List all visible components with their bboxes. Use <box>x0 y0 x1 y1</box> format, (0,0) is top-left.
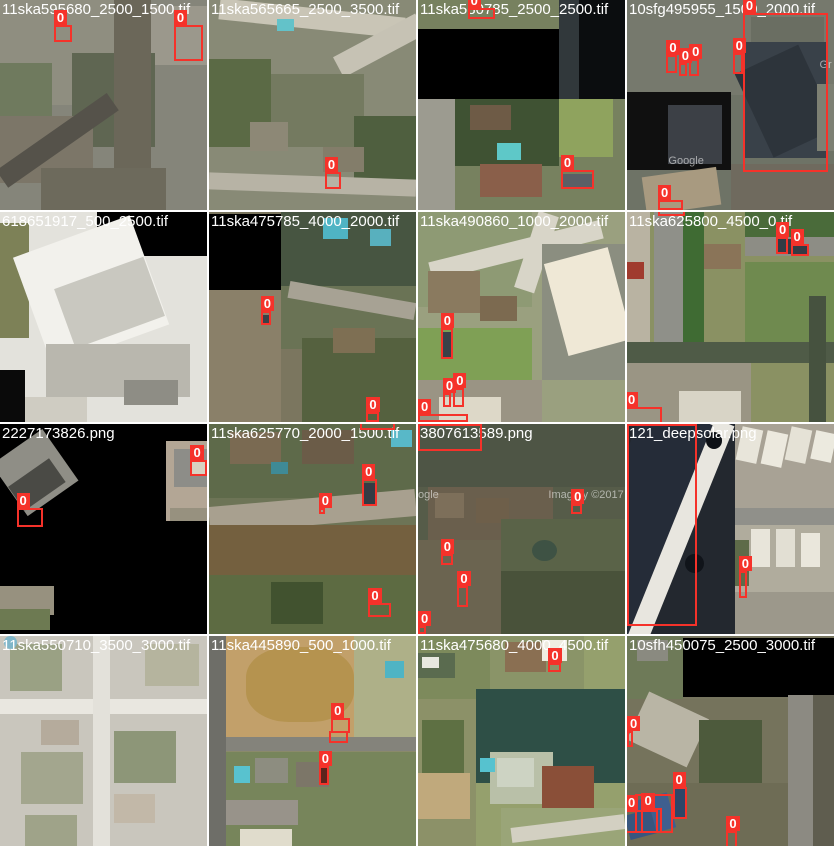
terrain-patch <box>418 773 470 819</box>
terrain-patch <box>501 519 625 572</box>
bounding-box: 0 <box>743 13 828 173</box>
bounding-box: 0 <box>627 407 662 422</box>
bounding-box: 0 <box>418 626 426 634</box>
tile-filename: 11ska580785_2500_2500.tif <box>420 1 608 18</box>
bounding-box: 0 <box>368 603 391 618</box>
bounding-box: 0 <box>457 586 467 607</box>
image-tile: 3807613589.pngogleImagery ©20170000 <box>418 424 625 634</box>
terrain-patch <box>209 525 416 575</box>
bbox-class-label: 0 <box>54 10 67 25</box>
bounding-box: 0 <box>418 414 468 422</box>
bbox-class-label: 0 <box>627 392 638 407</box>
bounding-box: 0 <box>791 244 810 257</box>
image-grid: 11ska595680_2500_1500.tif00 11ska565665_… <box>0 0 834 846</box>
terrain-patch <box>497 143 522 160</box>
tile-filename: 11ska565665_2500_3500.tif <box>211 1 399 18</box>
tile-filename: 11ska475680_4000_4500.tif <box>420 637 608 654</box>
terrain-patch <box>776 529 795 567</box>
bbox-class-label: 0 <box>733 38 746 53</box>
tile-filename: 11ska550710_3500_3000.tif <box>2 637 190 654</box>
bounding-box: 0 <box>443 393 451 408</box>
terrain-patch <box>679 391 741 423</box>
terrain-patch <box>418 29 559 98</box>
terrain-patch <box>627 262 644 279</box>
bounding-box: 0 <box>673 787 687 819</box>
bounding-box: 0 <box>627 810 658 833</box>
bbox-class-label: 0 <box>261 296 274 311</box>
bbox-class-label: 0 <box>791 229 804 244</box>
image-tile: 11ska490860_1000_2000.tif0000 <box>418 212 625 422</box>
bbox-class-label: 0 <box>174 10 187 25</box>
bbox-class-label: 0 <box>319 493 332 508</box>
bounding-box: 0 <box>689 59 699 76</box>
bounding-box: 0 <box>733 53 743 74</box>
terrain-patch <box>41 168 165 210</box>
terrain-patch <box>255 758 288 783</box>
bounding-box: 0 <box>627 731 633 748</box>
bbox-class-label: 0 <box>362 464 375 479</box>
image-tile: 11ska475785_4000_2000.tif00 <box>209 212 416 422</box>
terrain-patch <box>788 695 813 846</box>
image-tile: 618651917_500_2500.tif <box>0 212 207 422</box>
terrain-patch <box>170 508 207 521</box>
terrain-patch <box>21 752 83 805</box>
bbox-class-label: 0 <box>561 155 574 170</box>
terrain-patch <box>93 636 110 846</box>
bbox-class-label: 0 <box>641 793 654 808</box>
terrain-patch <box>271 582 323 624</box>
bbox-class-label: 0 <box>457 571 470 586</box>
terrain-patch <box>0 609 50 630</box>
bbox-class-label: 0 <box>739 556 752 571</box>
image-tile: 10sfh450075_2500_3000.tif00000 <box>627 636 834 846</box>
terrain-patch <box>226 737 416 752</box>
bounding-box: 0 <box>726 831 736 846</box>
bbox-class-label: 0 <box>627 795 638 810</box>
bbox-class-label: 0 <box>673 772 686 787</box>
terrain-patch <box>114 731 176 784</box>
terrain-patch <box>41 720 78 745</box>
terrain-patch <box>683 212 704 342</box>
image-tile: 11ska625770_2000_1500.tif000 <box>209 424 416 634</box>
terrain-patch <box>333 328 374 353</box>
terrain-patch <box>271 462 288 475</box>
bounding-box: 0 <box>325 172 342 189</box>
tile-filename: 11ska445890_500_1000.tif <box>211 637 391 654</box>
terrain-patch <box>226 800 298 825</box>
image-tile: 121_deepsolar.png0 <box>627 424 834 634</box>
terrain-patch <box>704 244 741 269</box>
bounding-box <box>329 731 348 744</box>
bbox-class-label: 0 <box>441 313 454 328</box>
bbox-class-label: 0 <box>743 0 756 13</box>
bounding-box: 0 <box>319 766 329 785</box>
bbox-class-label: 0 <box>658 185 671 200</box>
terrain-patch <box>627 342 834 363</box>
bounding-box: 0 <box>776 237 788 254</box>
bounding-box: 0 <box>739 571 747 598</box>
terrain-patch <box>385 661 404 678</box>
image-tile: 2227173826.png00 <box>0 424 207 634</box>
image-tile: 10sfg495955_1500_2000.tifGoogleGr000000 <box>627 0 834 210</box>
bbox-class-label: 0 <box>548 648 561 663</box>
bounding-box: 0 <box>366 412 378 423</box>
terrain-patch <box>751 529 770 567</box>
terrain-patch <box>234 766 251 783</box>
bounding-box: 0 <box>174 25 203 61</box>
map-watermark: ogle <box>418 489 439 501</box>
bounding-box: 0 <box>561 170 594 189</box>
terrain-patch <box>277 19 294 32</box>
bounding-box: 0 <box>571 504 581 515</box>
terrain-patch <box>559 99 613 158</box>
tile-filename: 11ska475785_4000_2000.tif <box>211 213 399 230</box>
bounding-box: 0 <box>54 25 73 42</box>
bounding-box: 0 <box>441 328 453 360</box>
terrain-patch <box>480 758 494 773</box>
bounding-box: 0 <box>319 508 325 514</box>
bounding-box <box>627 424 697 626</box>
bounding-box: 0 <box>658 200 683 211</box>
terrain-patch <box>532 540 557 561</box>
terrain-patch <box>480 296 517 321</box>
image-tile: 11ska445890_500_1000.tif00 <box>209 636 416 846</box>
bounding-box: 0 <box>468 8 495 19</box>
terrain-patch <box>250 122 287 151</box>
bbox-class-label: 0 <box>441 539 454 554</box>
terrain-patch <box>209 636 226 846</box>
terrain-patch <box>699 720 761 783</box>
image-tile: 11ska565665_2500_3500.tif0 <box>209 0 416 210</box>
tile-filename: 11ska490860_1000_2000.tif <box>420 213 608 230</box>
bbox-class-label: 0 <box>17 493 30 508</box>
tile-filename: 11ska625800_4500_0.tif <box>629 213 792 230</box>
bbox-class-label: 0 <box>776 222 789 237</box>
bounding-box: 0 <box>441 554 453 565</box>
bbox-class-label: 0 <box>627 716 640 731</box>
image-tile: 11ska580785_2500_2500.tif00 <box>418 0 625 210</box>
image-tile: 11ska475680_4000_4500.tif0 <box>418 636 625 846</box>
tile-filename: 618651917_500_2500.tif <box>2 213 168 230</box>
image-tile: 11ska595680_2500_1500.tif00 <box>0 0 207 210</box>
bbox-class-label: 0 <box>453 373 466 388</box>
bbox-class-label: 0 <box>666 40 679 55</box>
terrain-patch <box>735 592 834 634</box>
bounding-box: 0 <box>548 663 560 671</box>
terrain-patch <box>735 508 834 525</box>
image-tile: 11ska625800_4500_0.tif000 <box>627 212 834 422</box>
image-tile: 11ska550710_3500_3000.tif <box>0 636 207 846</box>
bounding-box <box>418 424 482 451</box>
bbox-class-label: 0 <box>571 489 584 504</box>
map-watermark: Google <box>668 155 703 167</box>
terrain-patch <box>480 164 542 198</box>
terrain-patch <box>428 271 480 313</box>
tile-filename: 10sfh450075_2500_3000.tif <box>629 637 815 654</box>
terrain-patch <box>370 229 391 246</box>
terrain-patch <box>435 493 464 518</box>
bounding-box: 0 <box>17 508 44 527</box>
bbox-class-label: 0 <box>418 399 431 414</box>
bounding-box: 0 <box>666 55 676 74</box>
terrain-patch <box>418 99 455 210</box>
bounding-box <box>658 212 685 216</box>
bbox-class-label: 0 <box>368 588 381 603</box>
bbox-class-label: 0 <box>190 445 203 460</box>
tile-filename: 11ska595680_2500_1500.tif <box>2 1 190 18</box>
terrain-patch <box>422 657 439 668</box>
terrain-patch <box>501 571 625 634</box>
map-watermark: Imagery ©2017 <box>548 489 623 501</box>
terrain-patch <box>801 533 820 567</box>
bounding-box <box>360 424 395 430</box>
bbox-class-label: 0 <box>726 816 739 831</box>
bounding-box: 0 <box>453 388 463 407</box>
bbox-class-label: 0 <box>331 703 344 718</box>
terrain-patch <box>497 758 534 787</box>
terrain-patch <box>240 829 292 846</box>
bounding-box: 0 <box>679 63 687 76</box>
bbox-class-label: 0 <box>689 44 702 59</box>
bbox-class-label: 0 <box>319 751 332 766</box>
terrain-patch <box>0 370 25 423</box>
bounding-box: 0 <box>190 460 207 477</box>
bbox-class-label: 0 <box>468 0 481 8</box>
terrain-patch <box>810 431 834 464</box>
terrain-patch <box>542 766 594 808</box>
terrain-patch <box>114 794 155 823</box>
bounding-box: 0 <box>261 311 271 326</box>
terrain-patch <box>422 720 463 773</box>
terrain-patch <box>25 397 87 422</box>
bbox-class-label: 0 <box>325 157 338 172</box>
terrain-patch <box>25 815 77 847</box>
terrain-patch <box>124 380 178 405</box>
bbox-class-label: 0 <box>418 611 431 626</box>
bbox-class-label: 0 <box>366 397 379 412</box>
terrain-patch <box>813 695 834 846</box>
tile-filename: 2227173826.png <box>2 425 115 442</box>
terrain-patch <box>470 105 511 130</box>
bounding-box: 0 <box>362 479 376 506</box>
terrain-patch <box>809 296 826 422</box>
